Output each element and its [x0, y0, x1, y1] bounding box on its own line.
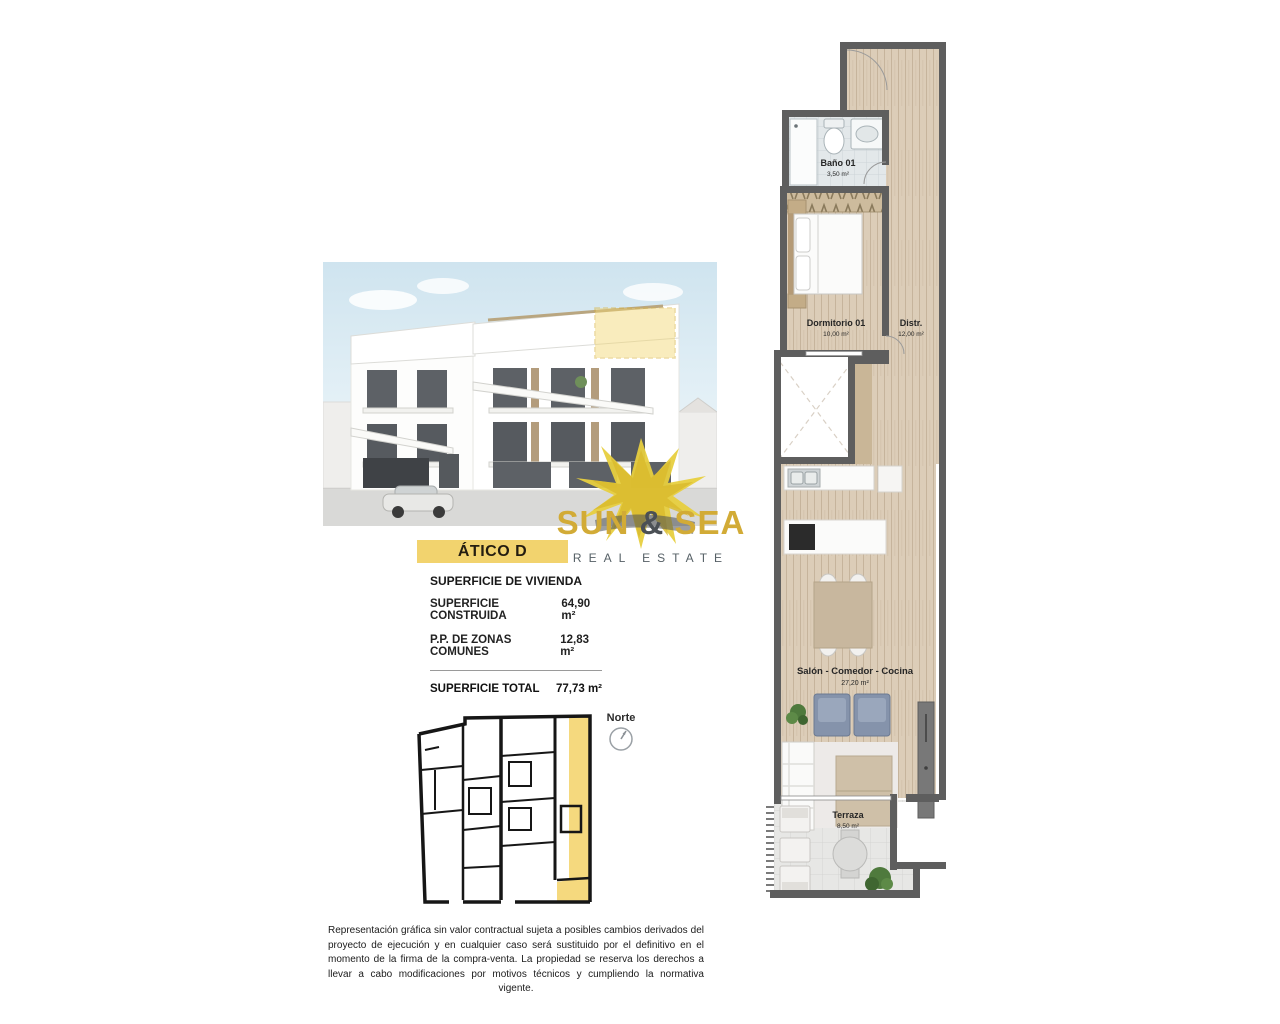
compass-label: Norte: [598, 712, 644, 724]
surface-total-value: 77,73 m²: [556, 683, 602, 695]
surface-row-value: 64,90 m²: [561, 598, 602, 622]
logo-tagline: REAL ESTATE: [553, 551, 749, 565]
apartment-floorplan: Baño 01 3,50 m² Dormitorio 01 10,00 m² D…: [758, 42, 970, 914]
room-area-bano: 3,50 m²: [827, 171, 850, 178]
room-label-terraza: Terraza: [832, 810, 864, 820]
room-area-distr: 12,00 m²: [898, 331, 924, 338]
room-area-dormitorio: 10,00 m²: [823, 331, 849, 338]
room-label-distr: Distr.: [900, 318, 923, 328]
logo-sea-word: SEA: [675, 504, 746, 541]
locator-plan: [405, 710, 600, 932]
north-compass: Norte: [598, 712, 644, 752]
surface-divider: [430, 670, 602, 671]
room-label-dormitorio: Dormitorio 01: [807, 318, 866, 328]
surface-row-total: SUPERFICIE TOTAL 77,73 m²: [430, 683, 602, 695]
brochure-page: SUN & SEA REAL ESTATE ÁTICO D SUPERFICIE…: [0, 0, 1280, 1024]
surface-header: SUPERFICIE DE VIVIENDA: [430, 574, 602, 588]
room-area-salon: 27,20 m²: [841, 680, 869, 687]
disclaimer-text: Representación gráfica sin valor contrac…: [328, 924, 704, 997]
bedroom-furniture: [788, 200, 862, 308]
surface-row-construida: SUPERFICIE CONSTRUIDA 64,90 m²: [430, 598, 602, 622]
unit-highlight-box: [595, 308, 675, 358]
compass-icon: [608, 726, 634, 752]
surface-table: SUPERFICIE DE VIVIENDA SUPERFICIE CONSTR…: [430, 574, 602, 707]
surface-total-label: SUPERFICIE TOTAL: [430, 683, 539, 695]
surface-row-label: SUPERFICIE CONSTRUIDA: [430, 598, 561, 622]
balcony-plant-icon: [575, 376, 587, 388]
logo-ampersand: &: [639, 504, 664, 541]
dining-set: [814, 574, 872, 656]
logo-sun-word: SUN: [557, 504, 630, 541]
logo-wordmark: SUN & SEA: [553, 506, 749, 539]
surface-row-label: P.P. DE ZONAS COMUNES: [430, 634, 560, 658]
room-label-bano: Baño 01: [820, 158, 855, 168]
room-label-salon: Salón - Comedor - Cocina: [797, 666, 914, 677]
room-area-terraza: 8,50 m²: [837, 823, 860, 830]
terrace-railing: [766, 802, 774, 894]
surface-row-value: 12,83 m²: [560, 634, 602, 658]
locator-walls: [419, 716, 590, 902]
unit-title: ÁTICO D: [417, 540, 568, 563]
surface-row-comunes: P.P. DE ZONAS COMUNES 12,83 m²: [430, 634, 602, 658]
